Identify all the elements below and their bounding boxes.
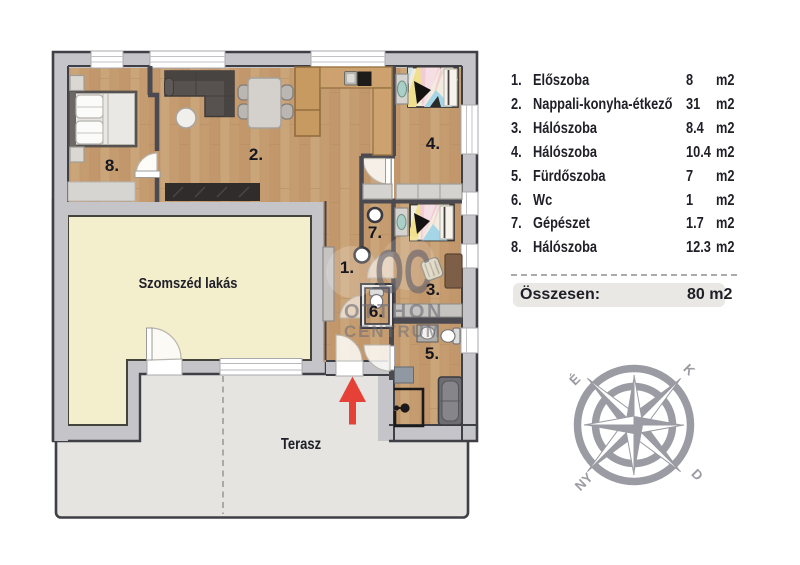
- svg-text:1.: 1.: [340, 258, 354, 277]
- svg-text:CENTRUM: CENTRUM: [344, 322, 442, 341]
- svg-text:7.: 7.: [368, 223, 382, 242]
- svg-text:8.: 8.: [105, 156, 119, 175]
- svg-text:3.: 3.: [426, 280, 440, 299]
- svg-text:É: É: [566, 371, 583, 388]
- svg-text:OC: OC: [375, 237, 431, 306]
- svg-text:4.: 4.: [426, 134, 440, 153]
- svg-text:Terasz: Terasz: [281, 436, 321, 453]
- svg-text:NY: NY: [572, 470, 596, 494]
- svg-text:D: D: [688, 466, 706, 484]
- svg-text:Szomszéd lakás: Szomszéd lakás: [139, 274, 238, 291]
- svg-text:2.: 2.: [249, 145, 263, 164]
- svg-text:5.: 5.: [425, 344, 439, 363]
- svg-text:K: K: [680, 361, 698, 379]
- svg-text:6.: 6.: [369, 302, 383, 321]
- svg-text:OTTHON: OTTHON: [344, 301, 444, 323]
